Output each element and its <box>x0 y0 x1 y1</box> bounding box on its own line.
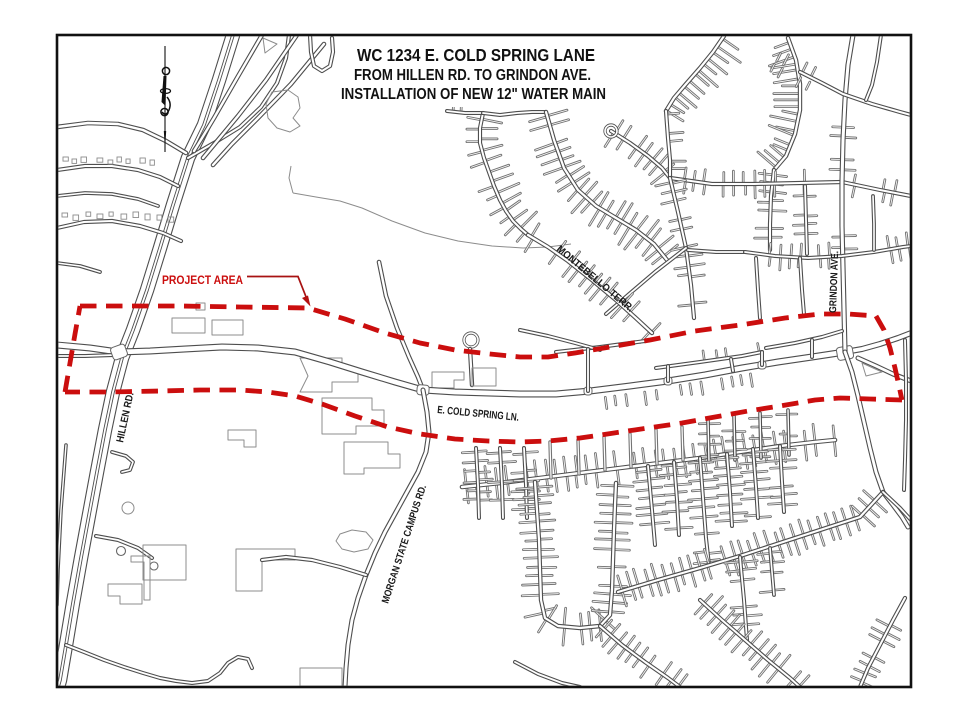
svg-text:INSTALLATION OF NEW 12" WATER: INSTALLATION OF NEW 12" WATER MAIN <box>341 86 606 103</box>
svg-text:GRINDON AVE.: GRINDON AVE. <box>828 251 841 313</box>
svg-text:FROM HILLEN RD. TO GRINDON AVE: FROM HILLEN RD. TO GRINDON AVE. <box>354 67 591 84</box>
svg-text:WC 1234 E. COLD SPRING LANE: WC 1234 E. COLD SPRING LANE <box>357 45 595 65</box>
svg-text:PROJECT AREA: PROJECT AREA <box>162 273 243 287</box>
